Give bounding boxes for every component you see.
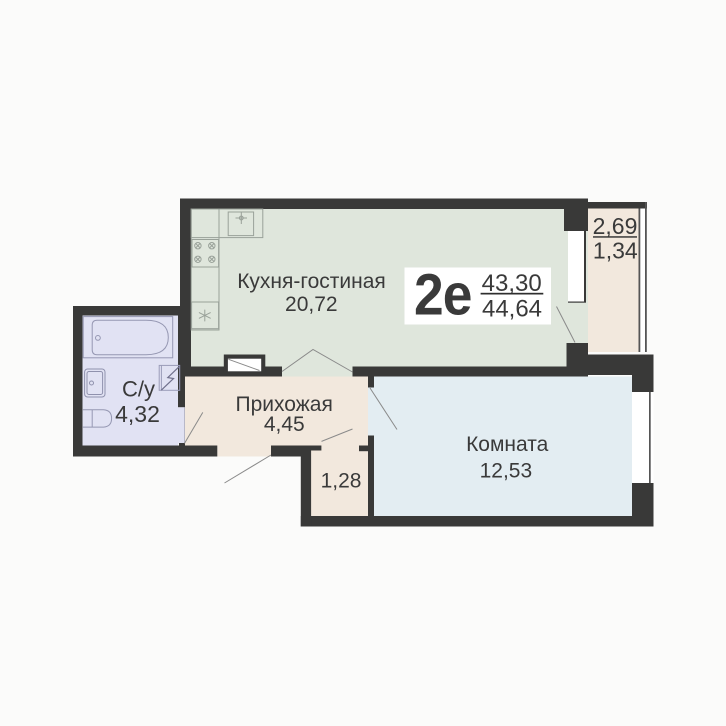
svg-text:Комната: Комната	[466, 433, 549, 456]
svg-text:2,69: 2,69	[593, 213, 638, 239]
svg-text:1,28: 1,28	[321, 470, 362, 493]
svg-text:С/у: С/у	[122, 377, 155, 402]
svg-text:12,53: 12,53	[480, 459, 533, 482]
svg-text:44,64: 44,64	[482, 296, 542, 323]
svg-text:4,32: 4,32	[115, 401, 160, 427]
svg-text:Кухня-гостиная: Кухня-гостиная	[237, 270, 386, 293]
svg-text:1,34: 1,34	[593, 237, 638, 263]
svg-text:4,45: 4,45	[264, 413, 305, 436]
svg-text:20,72: 20,72	[285, 293, 338, 316]
svg-text:2е: 2е	[414, 262, 472, 327]
